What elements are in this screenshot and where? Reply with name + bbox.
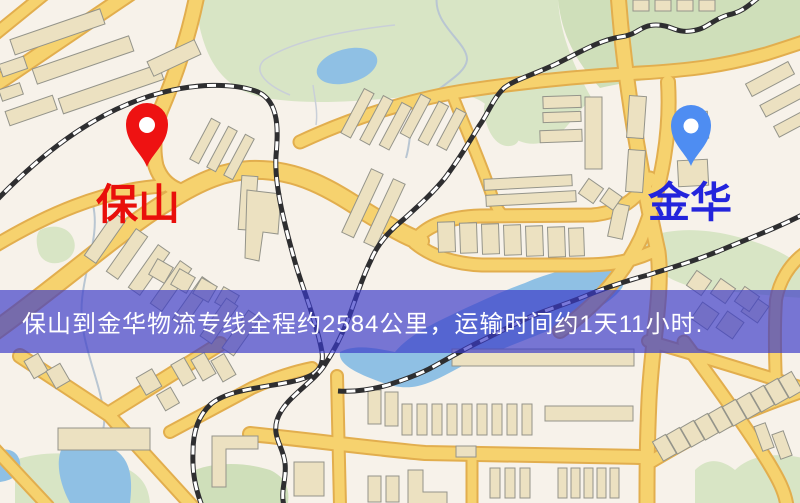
destination-label: 金华 xyxy=(647,179,732,226)
route-banner-text: 保山到金华物流专线全程约2584公里，运输时间约1天11小时. xyxy=(22,304,703,339)
route-banner: 保山到金华物流专线全程约2584公里，运输时间约1天11小时. xyxy=(0,290,800,353)
destination-pin-hole xyxy=(684,119,699,134)
origin-pin-hole xyxy=(139,117,155,133)
map-canvas[interactable]: 保山 金华 保山到金华物流专线全程约2584公里，运输时间约1天11小时. xyxy=(0,0,800,503)
origin-label: 保山 xyxy=(96,181,180,228)
